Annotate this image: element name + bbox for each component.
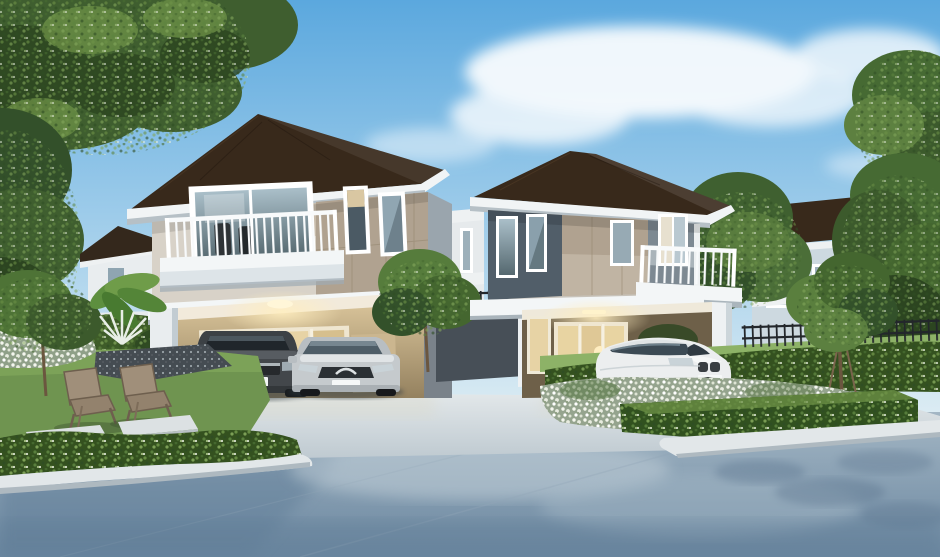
car-wheel <box>376 389 396 396</box>
right-window-2 <box>526 214 547 272</box>
left-narrow-window <box>343 185 371 254</box>
ceiling-lamp <box>267 300 293 309</box>
road-bottom-shade <box>0 520 940 557</box>
right-window-3 <box>610 220 634 266</box>
car-mirror <box>288 356 297 363</box>
scene-canvas <box>0 0 940 557</box>
ceiling-lamp <box>582 310 606 314</box>
car-wheel <box>300 389 320 396</box>
left-balcony <box>160 210 344 292</box>
rendering-stage <box>0 0 940 557</box>
left-corner-window <box>378 191 408 256</box>
right-window-1 <box>496 216 518 278</box>
car-silver-sedan <box>288 337 404 399</box>
